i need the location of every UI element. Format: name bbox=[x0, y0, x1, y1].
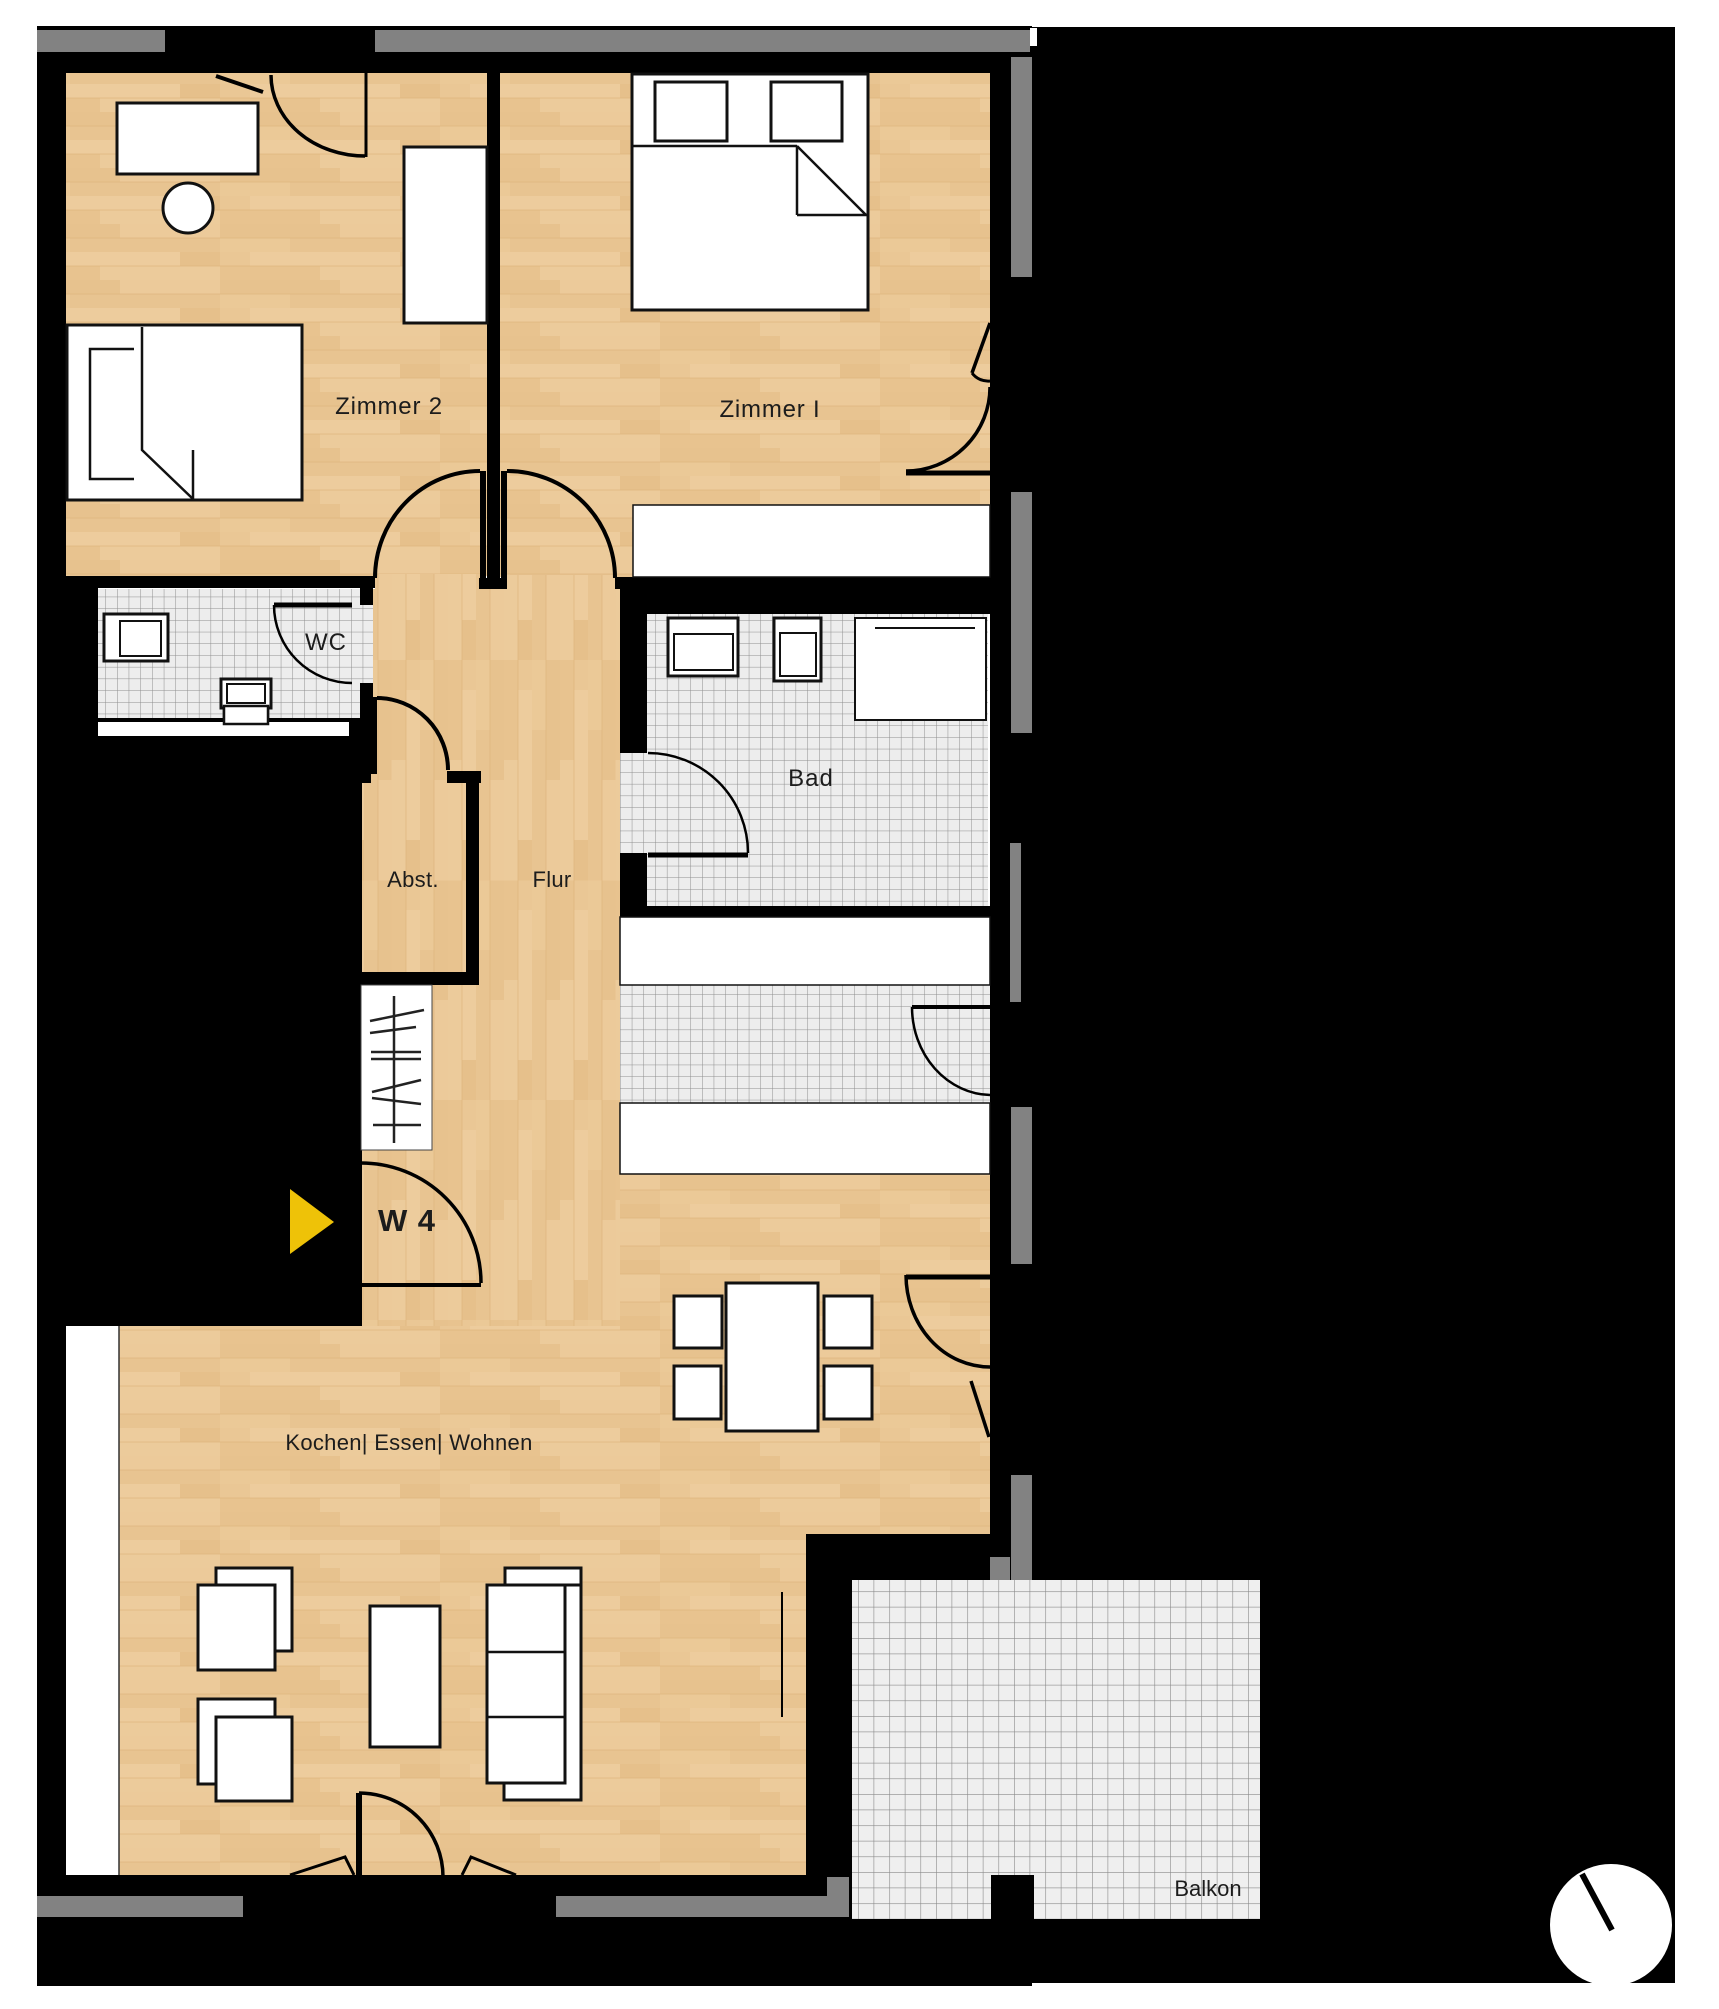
svg-text:W 4: W 4 bbox=[378, 1203, 436, 1238]
svg-text:Kochen| Essen| Wohnen: Kochen| Essen| Wohnen bbox=[285, 1430, 532, 1455]
svg-text:Bad: Bad bbox=[788, 765, 834, 792]
svg-text:Zimmer 2: Zimmer 2 bbox=[335, 393, 443, 420]
svg-text:WC: WC bbox=[305, 629, 347, 656]
svg-text:Abst.: Abst. bbox=[387, 867, 439, 892]
svg-text:Flur: Flur bbox=[532, 867, 571, 892]
svg-text:Zimmer I: Zimmer I bbox=[719, 396, 820, 423]
svg-text:Balkon: Balkon bbox=[1174, 1876, 1241, 1901]
